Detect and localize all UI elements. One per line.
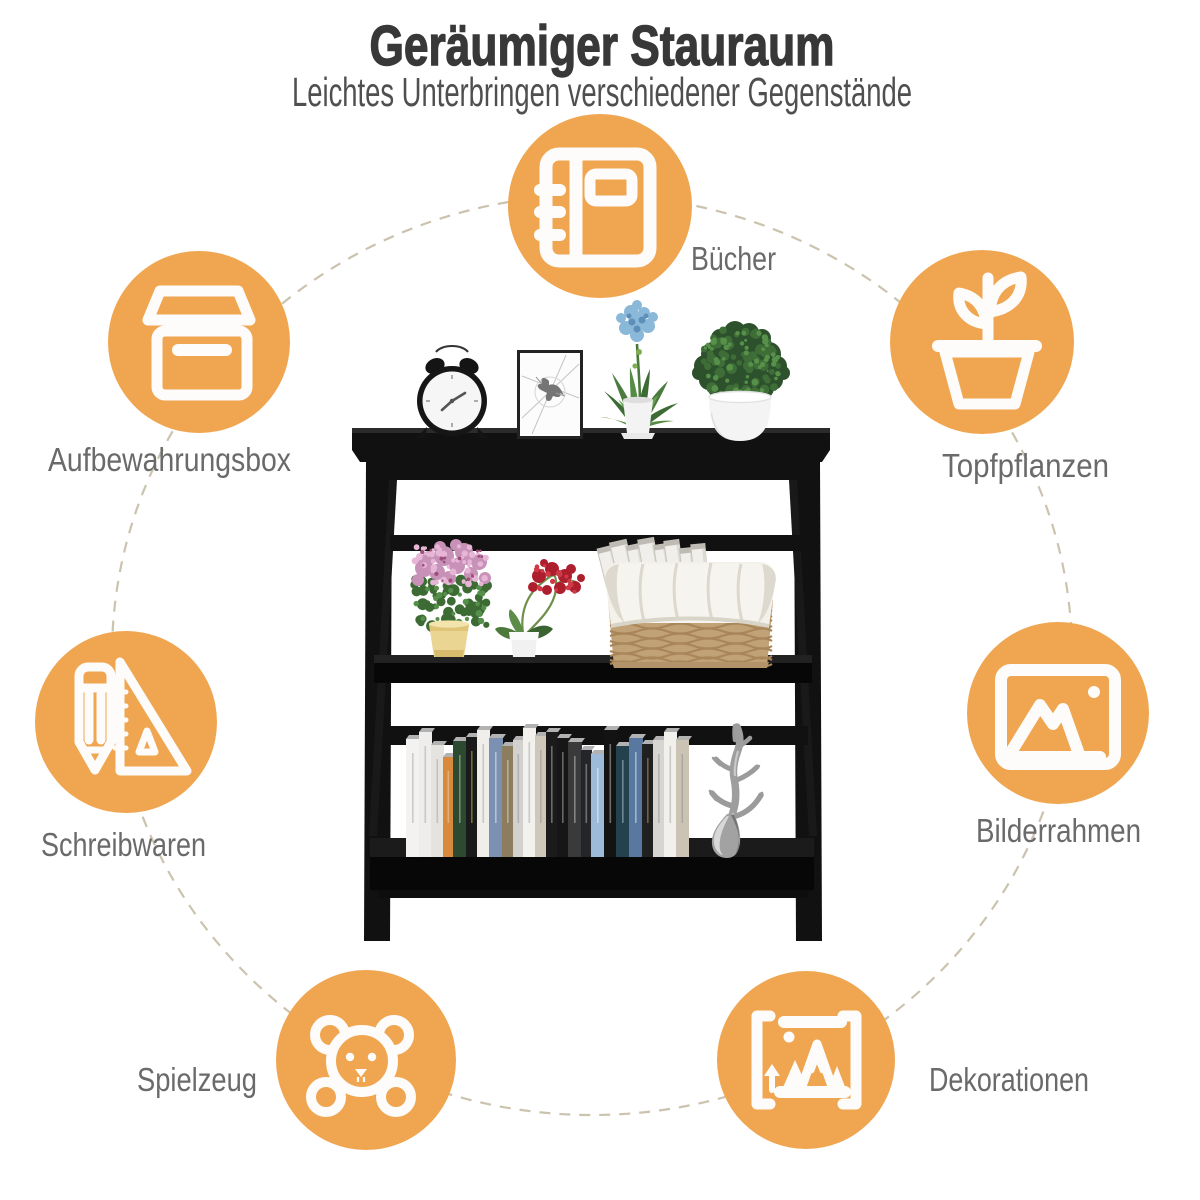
svg-text:Bücher: Bücher	[691, 240, 776, 277]
svg-text:Dekorationen: Dekorationen	[929, 1061, 1089, 1098]
svg-text:Spielzeug: Spielzeug	[137, 1061, 257, 1098]
svg-text:Topfpflanzen: Topfpflanzen	[942, 447, 1109, 484]
svg-text:Aufbewahrungsbox: Aufbewahrungsbox	[48, 441, 291, 478]
svg-text:Schreibwaren: Schreibwaren	[41, 826, 206, 863]
svg-text:Leichtes Unterbringen verschie: Leichtes Unterbringen verschiedener Gege…	[292, 69, 912, 115]
svg-text:Bilderrahmen: Bilderrahmen	[976, 812, 1141, 849]
